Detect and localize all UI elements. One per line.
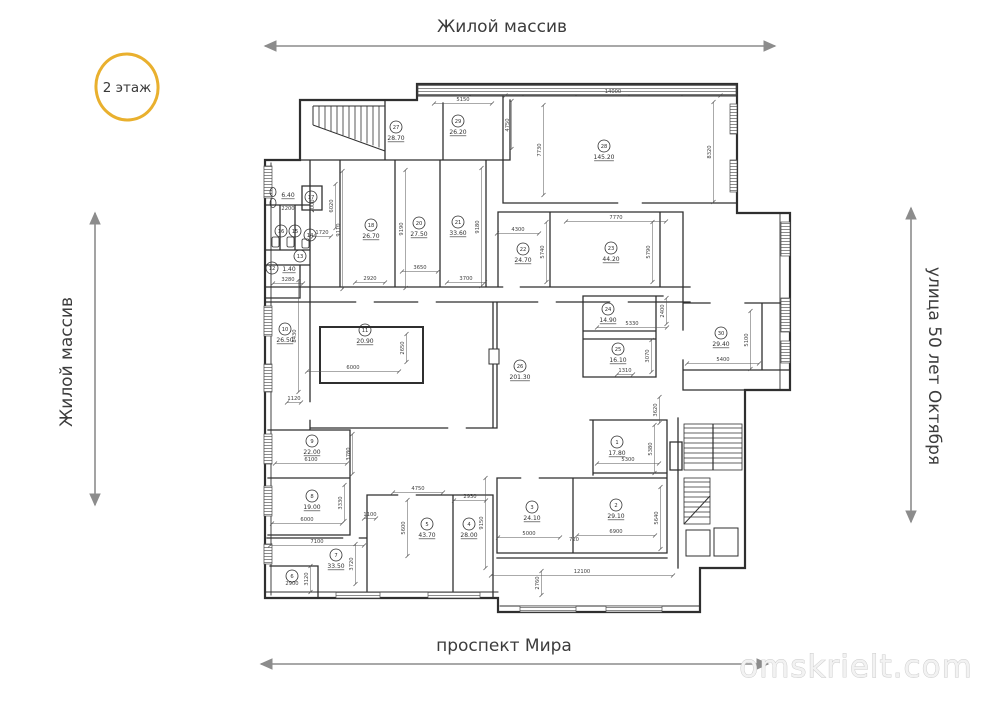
svg-text:6.40: 6.40 [281, 192, 295, 199]
svg-text:17: 17 [308, 195, 315, 201]
svg-text:2650: 2650 [400, 341, 406, 354]
dimension-label: 720 [569, 537, 579, 543]
toilet-icon [272, 237, 279, 247]
dimension-label: 9150 [479, 476, 488, 570]
dimension-label: 5000 [496, 531, 562, 540]
svg-text:3700: 3700 [459, 276, 472, 282]
svg-text:1720: 1720 [315, 230, 328, 236]
svg-text:201.30: 201.30 [510, 374, 531, 381]
svg-text:10: 10 [282, 327, 289, 333]
room-label: 2224.70 [514, 243, 531, 264]
svg-text:3: 3 [530, 505, 533, 511]
window [520, 606, 576, 612]
room-label: 16 [275, 225, 287, 237]
window [264, 434, 272, 464]
dimension-label: 6100 [273, 457, 349, 466]
room-label: 922.00 [303, 435, 320, 456]
room-label: 2133.60 [449, 216, 466, 237]
svg-text:5640: 5640 [654, 511, 660, 524]
svg-text:1120: 1120 [287, 396, 300, 402]
floorplan-canvas: Жилой массив Жилой массив улица 50 лет О… [0, 0, 1000, 706]
dimension-label: 2200 [281, 206, 294, 212]
svg-text:26.50: 26.50 [276, 337, 293, 344]
dimension-label: 3330 [338, 483, 347, 523]
room-label: 26201.30 [510, 360, 531, 381]
room-label: 324.10 [523, 501, 540, 522]
floor-badge: 2 этаж [92, 50, 162, 123]
dimension-label: 5790 [646, 220, 655, 284]
dimension-label: 3650 [400, 265, 440, 274]
dimension-label: 4300 [495, 227, 541, 236]
window [264, 364, 272, 392]
dimension-label: 4750 [505, 99, 514, 151]
dimension-label: 3120 [304, 564, 313, 594]
room-label: 428.00 [460, 518, 477, 539]
dimension-label: 5380 [648, 423, 657, 475]
svg-text:4750: 4750 [505, 118, 511, 131]
room-label: 543.70 [418, 518, 435, 539]
svg-text:9180: 9180 [475, 220, 481, 233]
svg-text:26.20: 26.20 [449, 129, 466, 136]
svg-text:33.60: 33.60 [449, 230, 466, 237]
dimension-label: 7730 [537, 103, 546, 197]
street-label-bottom: проспект Мира [436, 636, 572, 656]
svg-text:2920: 2920 [363, 276, 376, 282]
svg-text:5100: 5100 [744, 333, 750, 346]
svg-text:23: 23 [608, 246, 615, 252]
svg-text:9: 9 [310, 439, 313, 445]
room-label: 13 [294, 250, 306, 262]
svg-text:15: 15 [292, 229, 299, 235]
svg-text:28.00: 28.00 [460, 532, 477, 539]
svg-text:1.40: 1.40 [282, 266, 296, 273]
toilet-icon [287, 237, 294, 247]
dimension-label: 3700 [445, 276, 487, 285]
room-label: 819.00 [303, 490, 320, 511]
svg-text:16: 16 [278, 229, 285, 235]
window [264, 306, 272, 336]
dimension-label: 5300 [595, 457, 661, 466]
svg-text:5: 5 [425, 522, 428, 528]
svg-text:8: 8 [310, 494, 313, 500]
room-label: 6.40 [281, 192, 295, 199]
svg-text:12: 12 [269, 266, 276, 272]
svg-text:29.10: 29.10 [607, 513, 624, 520]
svg-text:3620: 3620 [653, 403, 659, 416]
svg-text:4750: 4750 [411, 486, 424, 492]
window [781, 298, 790, 332]
window [730, 104, 737, 134]
room-label: 2344.20 [602, 242, 619, 263]
dimension-label: 4750 [391, 486, 445, 495]
svg-text:6000: 6000 [346, 365, 359, 371]
svg-text:1310: 1310 [618, 368, 631, 374]
svg-text:26.70: 26.70 [362, 233, 379, 240]
svg-text:5000: 5000 [522, 531, 535, 537]
dimension-label: 6900 [575, 529, 657, 538]
dimension-label: 3070 [645, 338, 654, 374]
window [428, 592, 480, 598]
svg-text:3280: 3280 [281, 277, 294, 283]
svg-text:12100: 12100 [574, 569, 591, 575]
svg-text:16.10: 16.10 [609, 357, 626, 364]
dimension-label: 12100 [489, 569, 675, 578]
svg-text:6020: 6020 [329, 199, 335, 212]
svg-text:2200: 2200 [281, 206, 294, 212]
svg-text:6900: 6900 [609, 529, 622, 535]
svg-text:2: 2 [614, 503, 617, 509]
window [264, 166, 272, 198]
svg-text:720: 720 [569, 537, 579, 543]
watermark: omskrielt.com [739, 649, 973, 685]
svg-text:20: 20 [416, 221, 423, 227]
dimension-label: 3720 [349, 542, 358, 586]
svg-text:44.20: 44.20 [602, 256, 619, 263]
svg-text:26: 26 [517, 364, 524, 370]
svg-text:24.70: 24.70 [514, 257, 531, 264]
dimension-label: 7100 [268, 539, 366, 548]
svg-text:3120: 3120 [304, 572, 310, 585]
svg-text:7: 7 [334, 553, 337, 559]
room-label: 229.10 [607, 499, 624, 520]
svg-text:3330: 3330 [338, 496, 344, 509]
dimension-label: 5740 [540, 220, 549, 284]
svg-text:5790: 5790 [646, 245, 652, 258]
svg-text:17.80: 17.80 [608, 450, 625, 457]
floorplan-page: Жилой массив Жилой массив улица 50 лет О… [0, 0, 1000, 706]
svg-text:3780: 3780 [346, 447, 352, 460]
window [781, 341, 790, 363]
svg-text:2930: 2930 [463, 494, 476, 500]
svg-text:29.40: 29.40 [712, 341, 729, 348]
room-label: 2414.90 [599, 303, 616, 324]
svg-text:24.10: 24.10 [523, 515, 540, 522]
svg-text:9190: 9190 [399, 222, 405, 235]
window [781, 222, 790, 256]
window [606, 606, 662, 612]
dimension-label: 1310 [615, 368, 635, 377]
svg-text:21: 21 [455, 220, 462, 226]
svg-text:25: 25 [615, 347, 622, 353]
dimension-label: 5150 [432, 97, 494, 106]
dimension-label: 8320 [707, 100, 716, 204]
svg-text:7100: 7100 [310, 539, 323, 545]
partition-box [489, 349, 499, 364]
room-label: 2728.70 [387, 121, 404, 142]
street-annotations: Жилой массив Жилой массив улица 50 лет О… [57, 17, 944, 664]
svg-text:3070: 3070 [645, 349, 651, 362]
svg-text:2760: 2760 [535, 576, 541, 589]
window-band-top [418, 85, 736, 95]
svg-text:3650: 3650 [413, 265, 426, 271]
dimension-label: 8430 [292, 278, 301, 394]
floor-badge-label: 2 этаж [103, 80, 152, 96]
street-label-top: Жилой массив [437, 17, 567, 37]
room-label: 733.50 [327, 549, 344, 570]
room11-box [320, 327, 423, 383]
room-label: 2926.20 [449, 115, 466, 136]
svg-text:27.50: 27.50 [410, 231, 427, 238]
svg-text:43.70: 43.70 [418, 532, 435, 539]
svg-text:30: 30 [718, 331, 725, 337]
svg-text:27: 27 [393, 125, 400, 131]
window [336, 592, 380, 598]
svg-text:33.50: 33.50 [327, 563, 344, 570]
svg-text:4300: 4300 [511, 227, 524, 233]
dimension-label: 1100 [362, 512, 378, 521]
svg-text:6000: 6000 [300, 517, 313, 523]
room-label: 117.80 [608, 436, 625, 457]
svg-text:6100: 6100 [304, 457, 317, 463]
dimension-label: 5400 [685, 357, 761, 366]
window [264, 544, 272, 564]
dimension-label: 5640 [654, 485, 663, 551]
dimension-label: 2650 [400, 332, 409, 364]
dimension-label: 9180 [475, 166, 484, 288]
street-label-left: Жилой массив [57, 297, 77, 427]
dimension-label: 5100 [744, 309, 753, 371]
street-label-right: улица 50 лет Октября [924, 267, 944, 465]
svg-text:11: 11 [362, 328, 369, 334]
dimension-label: 2760 [535, 569, 544, 597]
dimension-label: 1120 [285, 396, 303, 405]
svg-text:3720: 3720 [349, 557, 355, 570]
dimension-label: 2400 [660, 296, 669, 326]
svg-text:22.00: 22.00 [303, 449, 320, 456]
window [730, 160, 737, 192]
room-label: 121.40 [266, 262, 296, 274]
svg-text:2400: 2400 [660, 304, 666, 317]
svg-text:5400: 5400 [716, 357, 729, 363]
svg-text:5330: 5330 [625, 321, 638, 327]
svg-text:14: 14 [307, 233, 314, 239]
svg-text:145.20: 145.20 [594, 154, 615, 161]
svg-text:19.00: 19.00 [303, 504, 320, 511]
svg-text:9110: 9110 [336, 223, 342, 236]
svg-text:5150: 5150 [456, 97, 469, 103]
svg-text:1: 1 [615, 440, 618, 446]
svg-text:5380: 5380 [648, 442, 654, 455]
svg-text:7770: 7770 [609, 215, 622, 221]
svg-text:4: 4 [467, 522, 471, 528]
room-label: 28145.20 [594, 140, 615, 161]
svg-text:14.90: 14.90 [599, 317, 616, 324]
dimension-label: 6000 [270, 517, 344, 526]
svg-text:5600: 5600 [401, 521, 407, 534]
window [264, 486, 272, 516]
svg-text:13: 13 [297, 254, 304, 260]
room-label: 1826.70 [362, 219, 379, 240]
svg-text:9150: 9150 [479, 516, 485, 529]
svg-text:7730: 7730 [537, 143, 543, 156]
svg-text:28.70: 28.70 [387, 135, 404, 142]
svg-text:22: 22 [520, 247, 527, 253]
room-label: 2516.10 [609, 343, 626, 364]
svg-text:24: 24 [605, 307, 612, 313]
svg-text:18: 18 [368, 223, 375, 229]
svg-text:14000: 14000 [605, 89, 622, 95]
svg-text:5300: 5300 [621, 457, 634, 463]
svg-text:5740: 5740 [540, 245, 546, 258]
svg-text:8320: 8320 [707, 145, 713, 158]
dimension-label: 2920 [353, 276, 387, 285]
dimension-label: 5600 [401, 498, 410, 558]
svg-text:29: 29 [455, 119, 462, 125]
room-label: 3029.40 [712, 327, 729, 348]
room-label: 2027.50 [410, 217, 427, 238]
dimension-label: 6020 [329, 182, 338, 230]
svg-text:20.90: 20.90 [356, 338, 373, 345]
svg-text:28: 28 [601, 144, 608, 150]
svg-text:6: 6 [290, 574, 293, 580]
